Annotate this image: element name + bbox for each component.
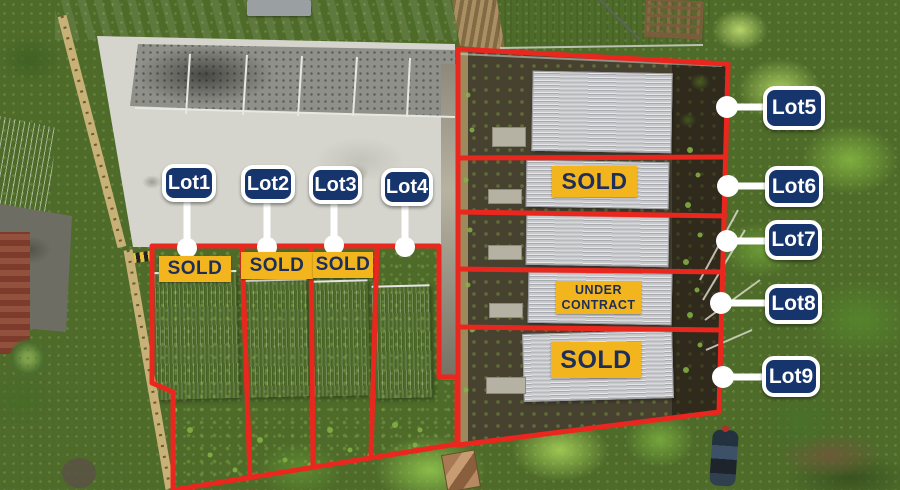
lot-label-lot1: Lot1 — [162, 164, 216, 202]
lot-label-lot5: Lot5 — [763, 86, 825, 130]
status-badge-lot6: SOLD — [552, 166, 637, 197]
status-badge-lot3: SOLD — [313, 252, 373, 278]
lot-label-lot6: Lot6 — [765, 166, 823, 207]
lot-label-lot9: Lot9 — [762, 356, 820, 397]
lot-label-lot3: Lot3 — [309, 166, 362, 204]
status-badge-lot1: SOLD — [159, 256, 231, 282]
status-badge-lot2: SOLD — [241, 252, 313, 279]
lot-label-lot4: Lot4 — [381, 168, 433, 206]
lot-label-lot2: Lot2 — [241, 165, 295, 203]
lot-label-lot7: Lot7 — [765, 220, 822, 260]
lot-label-lot8: Lot8 — [765, 284, 822, 324]
aerial-site-photo: Lot1 Lot2 Lot3 Lot4 Lot5 Lot6 Lot7 Lot8 … — [0, 0, 900, 490]
status-badge-lot8: UNDER CONTRACT — [556, 281, 641, 314]
status-badge-lot9: SOLD — [551, 342, 641, 378]
